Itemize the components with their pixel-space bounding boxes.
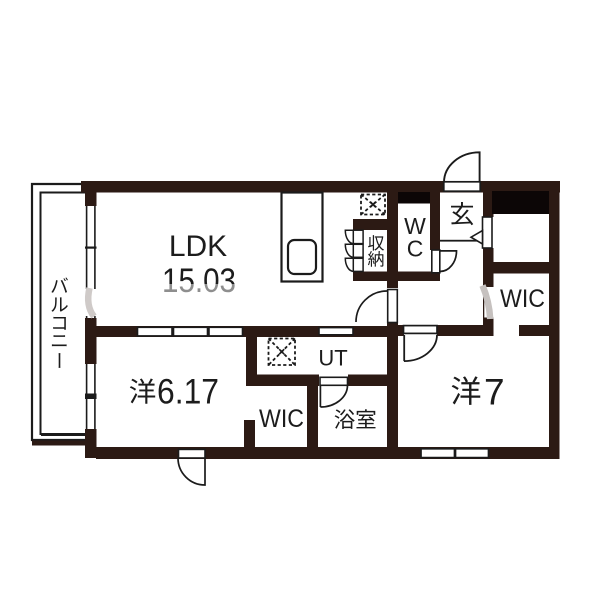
svg-text:6.17: 6.17 <box>157 372 219 412</box>
svg-text:WIC: WIC <box>259 405 304 433</box>
svg-text:LDK: LDK <box>169 230 227 263</box>
svg-text:7: 7 <box>484 372 505 413</box>
svg-text:UT: UT <box>318 346 347 371</box>
svg-text:C: C <box>407 236 424 262</box>
svg-text:WIC: WIC <box>500 285 545 313</box>
